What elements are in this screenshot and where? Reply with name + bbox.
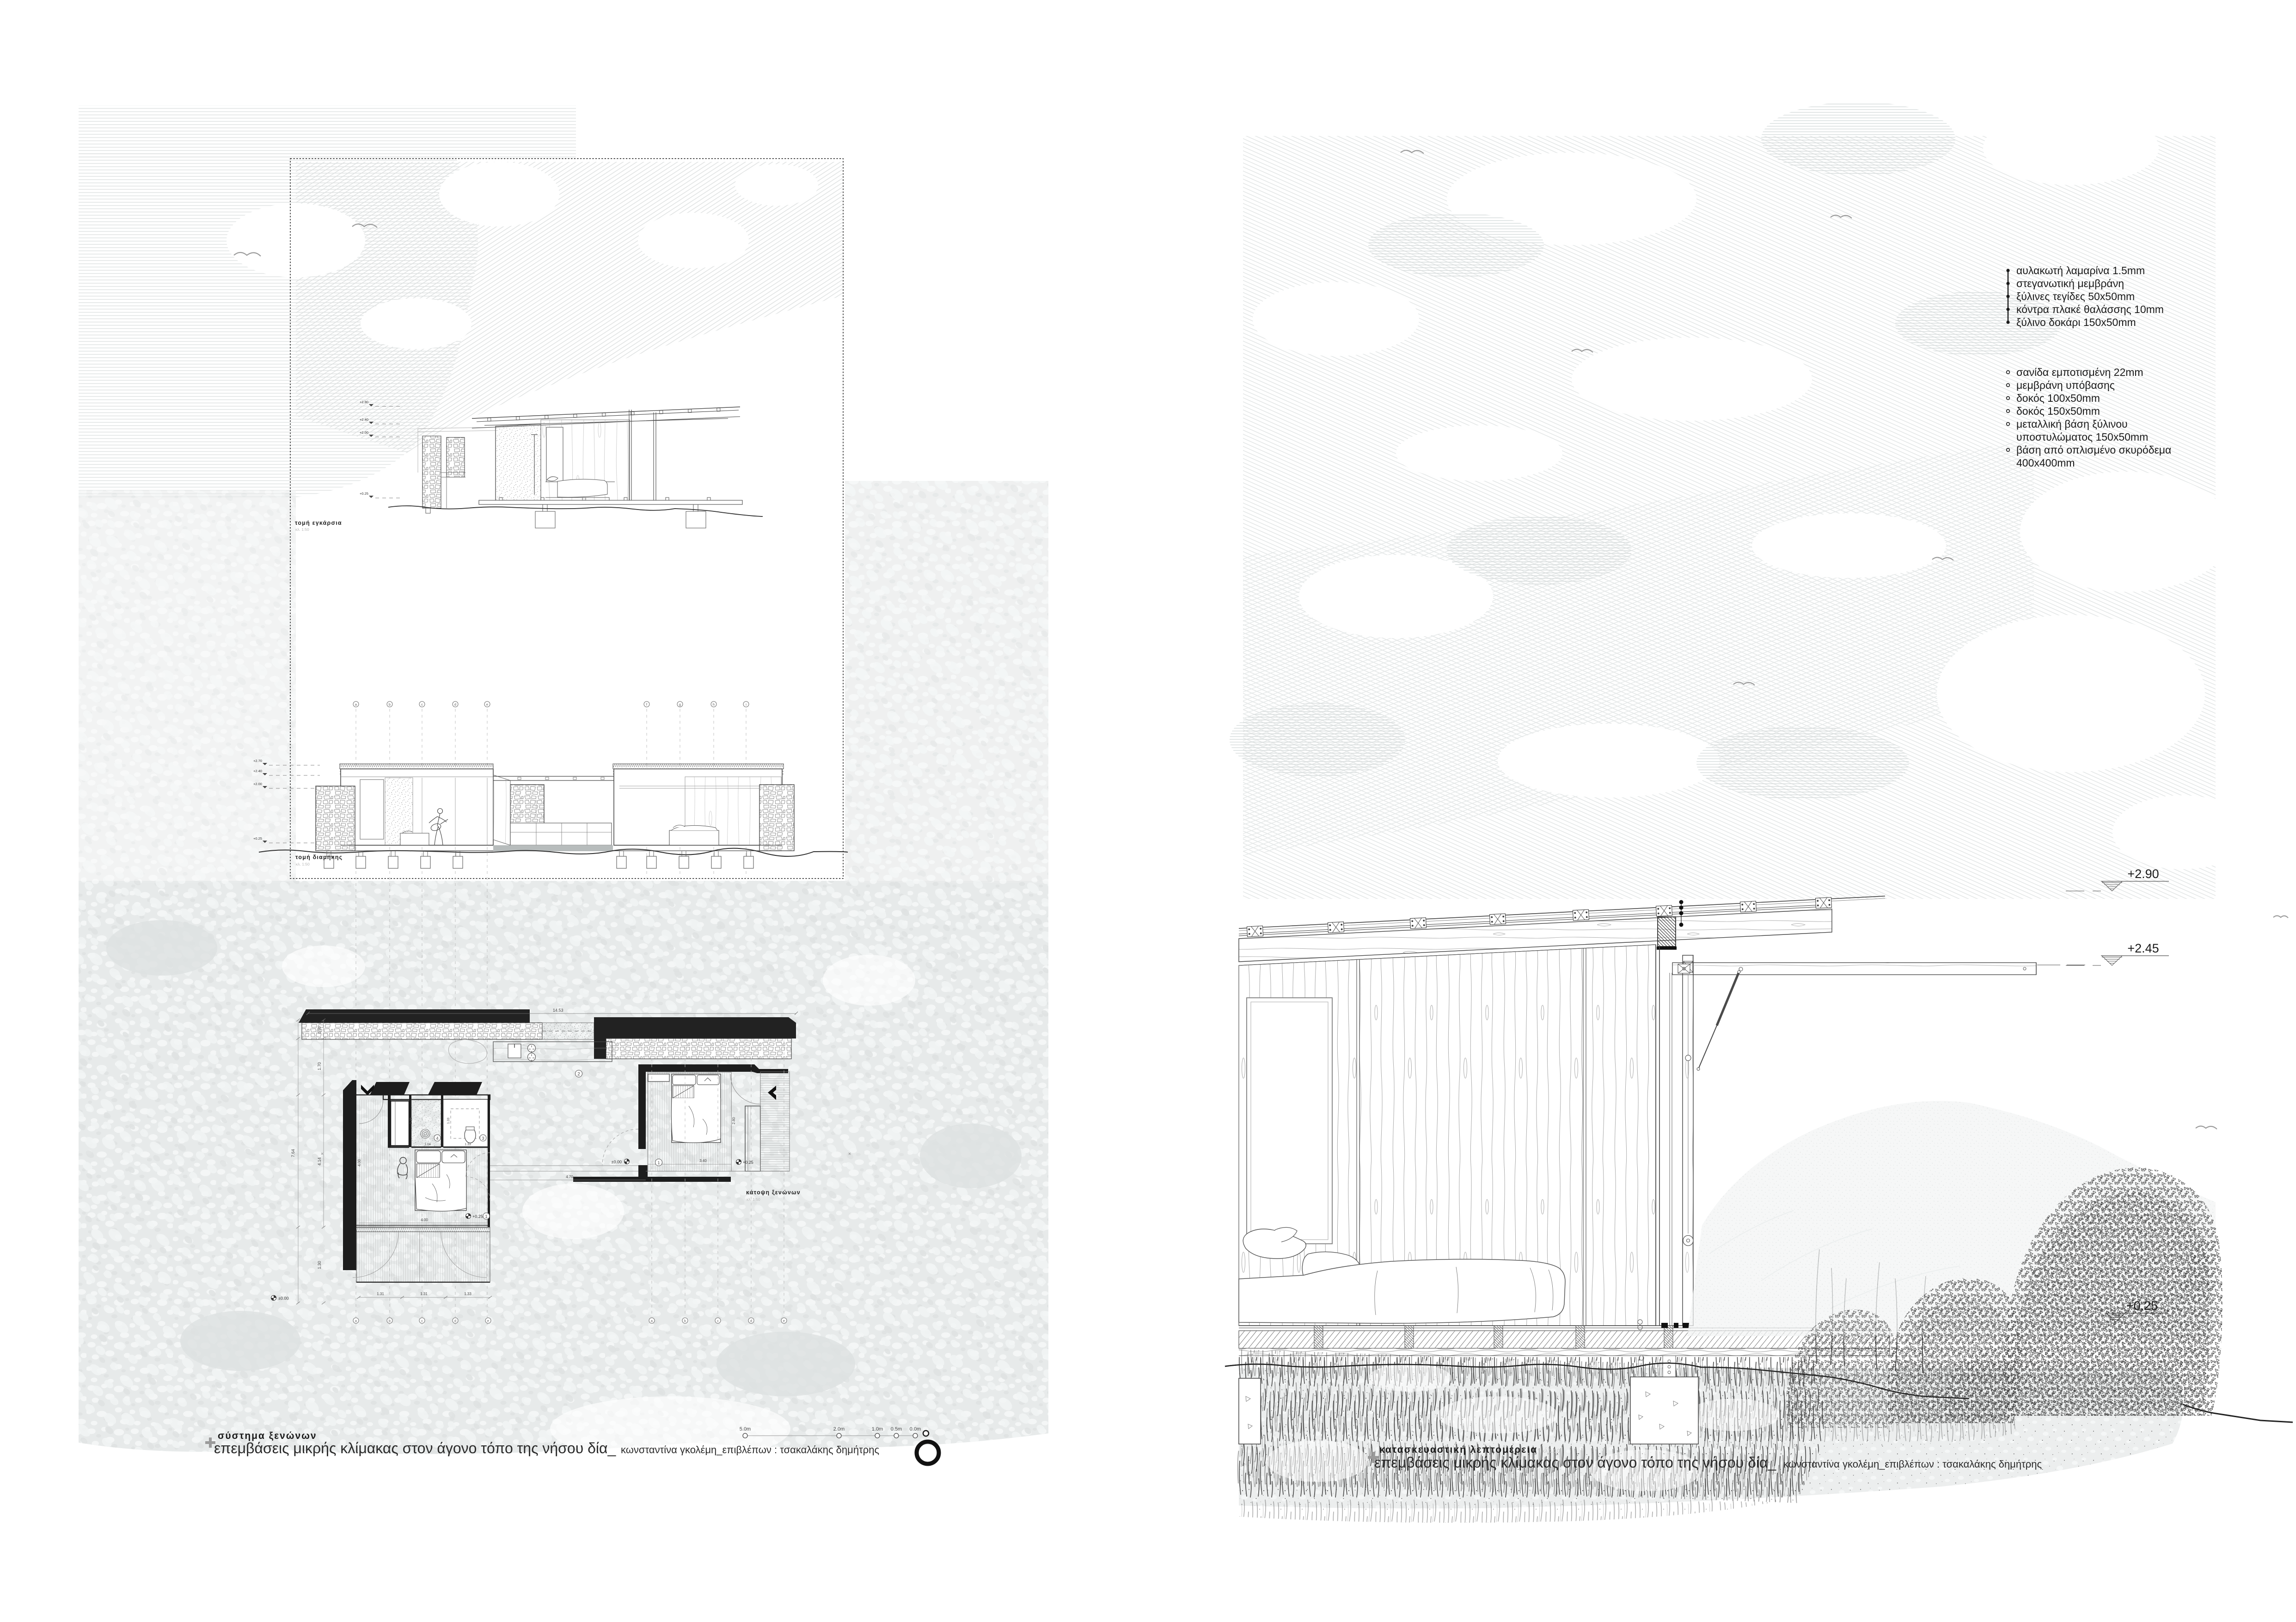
svg-text:1.33: 1.33 bbox=[464, 1292, 471, 1296]
svg-text:±0.00: ±0.00 bbox=[278, 1296, 288, 1301]
svg-text:τομή εγκάρσια: τομή εγκάρσια bbox=[295, 520, 342, 526]
svg-text:1.31: 1.31 bbox=[377, 1292, 384, 1296]
svg-text:+2.00: +2.00 bbox=[253, 782, 262, 786]
svg-text:σανίδα εμποτισμένη 22mm: σανίδα εμποτισμένη 22mm bbox=[2016, 366, 2143, 378]
svg-text:1.39: 1.39 bbox=[410, 1118, 413, 1124]
svg-text:e: e bbox=[783, 1320, 785, 1323]
svg-text:1: 1 bbox=[485, 1214, 487, 1219]
svg-text:4.14: 4.14 bbox=[317, 1157, 322, 1166]
svg-text:4.00: 4.00 bbox=[421, 1218, 428, 1222]
svg-text:14.53: 14.53 bbox=[553, 1008, 563, 1013]
svg-text:4.70: 4.70 bbox=[566, 1175, 573, 1179]
svg-text:d: d bbox=[454, 1320, 456, 1323]
svg-text:a: a bbox=[651, 1320, 653, 1323]
svg-text:επεμβάσεις μικρής κλίμακας στο: επεμβάσεις μικρής κλίμακας στον άγονο τό… bbox=[1374, 1454, 1777, 1471]
svg-text:μεμβράνη υπόβασης: μεμβράνη υπόβασης bbox=[2016, 379, 2115, 391]
svg-text:1.70: 1.70 bbox=[317, 1062, 322, 1070]
svg-text:a: a bbox=[355, 1320, 357, 1323]
svg-text:+2.40: +2.40 bbox=[253, 769, 262, 773]
svg-text:e: e bbox=[486, 703, 488, 707]
svg-text:b: b bbox=[389, 1320, 391, 1323]
svg-text:0.5m: 0.5m bbox=[891, 1426, 902, 1432]
svg-text:×: × bbox=[848, 1151, 851, 1157]
svg-text:400x400mm: 400x400mm bbox=[2016, 457, 2075, 469]
svg-text:κλ. 1:50: κλ. 1:50 bbox=[295, 527, 309, 532]
svg-text:2: 2 bbox=[577, 1072, 580, 1077]
svg-text:c: c bbox=[717, 1320, 719, 1323]
svg-text:+0.25: +0.25 bbox=[253, 836, 262, 841]
svg-text:c: c bbox=[421, 703, 423, 707]
svg-text:±0.00: ±0.00 bbox=[612, 1160, 622, 1164]
svg-text:ξύλινες τεγίδες 50x50mm: ξύλινες τεγίδες 50x50mm bbox=[2016, 290, 2135, 302]
svg-text:1.33: 1.33 bbox=[447, 1118, 450, 1124]
svg-text:κλ. 1:50: κλ. 1:50 bbox=[296, 862, 310, 866]
svg-text:κωνσταντίνα γκολέμη_επιβλέπων: κωνσταντίνα γκολέμη_επιβλέπων : τσακαλάκ… bbox=[621, 1444, 879, 1456]
svg-text:1.31: 1.31 bbox=[420, 1292, 428, 1296]
svg-text:1: 1 bbox=[657, 1161, 660, 1165]
svg-text:3.40: 3.40 bbox=[699, 1159, 707, 1163]
svg-text:c: c bbox=[421, 1320, 423, 1323]
svg-text:βάση από οπλισμένο σκυρόδεμα: βάση από οπλισμένο σκυρόδεμα bbox=[2016, 444, 2171, 456]
svg-text:2.80: 2.80 bbox=[732, 1117, 736, 1124]
svg-text:μεταλλική βάση ξύλινου: μεταλλική βάση ξύλινου bbox=[2016, 418, 2128, 430]
svg-text:1.0m: 1.0m bbox=[872, 1426, 883, 1432]
svg-text:+0.25: +0.25 bbox=[743, 1160, 753, 1165]
svg-text:0.0m: 0.0m bbox=[910, 1426, 921, 1432]
svg-text:κλ.1.10: κλ.1.10 bbox=[1542, 1448, 1560, 1454]
svg-text:×: × bbox=[321, 1151, 324, 1157]
svg-text:+0.25: +0.25 bbox=[2126, 1299, 2158, 1313]
svg-text:κλ. 1:50: κλ. 1:50 bbox=[747, 1197, 760, 1202]
svg-text:+0.25: +0.25 bbox=[472, 1214, 483, 1219]
svg-text:+2.00: +2.00 bbox=[360, 430, 368, 435]
svg-text:+2.90: +2.90 bbox=[2127, 867, 2159, 881]
svg-text:b: b bbox=[684, 1320, 686, 1323]
svg-text:d: d bbox=[454, 703, 456, 707]
svg-text:1.33: 1.33 bbox=[465, 1143, 471, 1146]
svg-text:κάτοψη ξενώνων: κάτοψη ξενώνων bbox=[746, 1189, 801, 1196]
svg-text:στεγανωτική μεμβράνη: στεγανωτική μεμβράνη bbox=[2016, 277, 2124, 289]
svg-text:4: 4 bbox=[436, 1136, 438, 1141]
svg-text:κόντρα πλακέ θαλάσσης 10mm: κόντρα πλακέ θαλάσσης 10mm bbox=[2016, 303, 2164, 315]
svg-text:+2.70: +2.70 bbox=[253, 759, 262, 763]
svg-text:d: d bbox=[750, 1320, 752, 1323]
svg-text:3: 3 bbox=[482, 1136, 484, 1141]
svg-text:1.30: 1.30 bbox=[317, 1261, 322, 1269]
svg-text:1.04: 1.04 bbox=[424, 1143, 431, 1146]
svg-text:+0.25: +0.25 bbox=[360, 492, 368, 496]
svg-text:κατασκευαστική λεπτομέρεια: κατασκευαστική λεπτομέρεια bbox=[1379, 1444, 1537, 1455]
svg-text:0.50: 0.50 bbox=[318, 1026, 322, 1034]
svg-text:δοκός 150x50mm: δοκός 150x50mm bbox=[2016, 405, 2100, 417]
svg-text:g: g bbox=[679, 703, 681, 707]
svg-text:δοκός 100x50mm: δοκός 100x50mm bbox=[2016, 392, 2100, 404]
svg-text:αυλακωτή λαμαρίνα 1.5mm: αυλακωτή λαμαρίνα 1.5mm bbox=[2016, 264, 2145, 276]
svg-text:ξύλινο δοκάρι 150x50mm: ξύλινο δοκάρι 150x50mm bbox=[2016, 316, 2136, 328]
svg-text:+2.45: +2.45 bbox=[2127, 941, 2159, 955]
svg-text:e: e bbox=[487, 1320, 489, 1323]
svg-text:+2.90: +2.90 bbox=[360, 400, 368, 404]
svg-text:κωνσταντίνα γκολέμη_επιβλέπων: κωνσταντίνα γκολέμη_επιβλέπων : τσακαλάκ… bbox=[1783, 1458, 2042, 1470]
svg-text:a: a bbox=[355, 703, 357, 707]
svg-text:2.0m: 2.0m bbox=[833, 1426, 845, 1432]
svg-text:επεμβάσεις μικρής κλίμακας στο: επεμβάσεις μικρής κλίμακας στον άγονο τό… bbox=[214, 1440, 617, 1456]
svg-text:5.0m: 5.0m bbox=[740, 1426, 751, 1432]
svg-text:b: b bbox=[389, 703, 391, 707]
svg-text:f: f bbox=[646, 703, 647, 707]
svg-text:υποστυλώματος 150x50mm: υποστυλώματος 150x50mm bbox=[2016, 431, 2148, 443]
svg-text:+2.40: +2.40 bbox=[360, 418, 368, 422]
svg-text:τομή διαμήκης: τομή διαμήκης bbox=[295, 854, 343, 860]
svg-text:7.64: 7.64 bbox=[291, 1149, 295, 1157]
svg-text:h: h bbox=[713, 703, 715, 707]
svg-text:4.00: 4.00 bbox=[357, 1159, 361, 1167]
